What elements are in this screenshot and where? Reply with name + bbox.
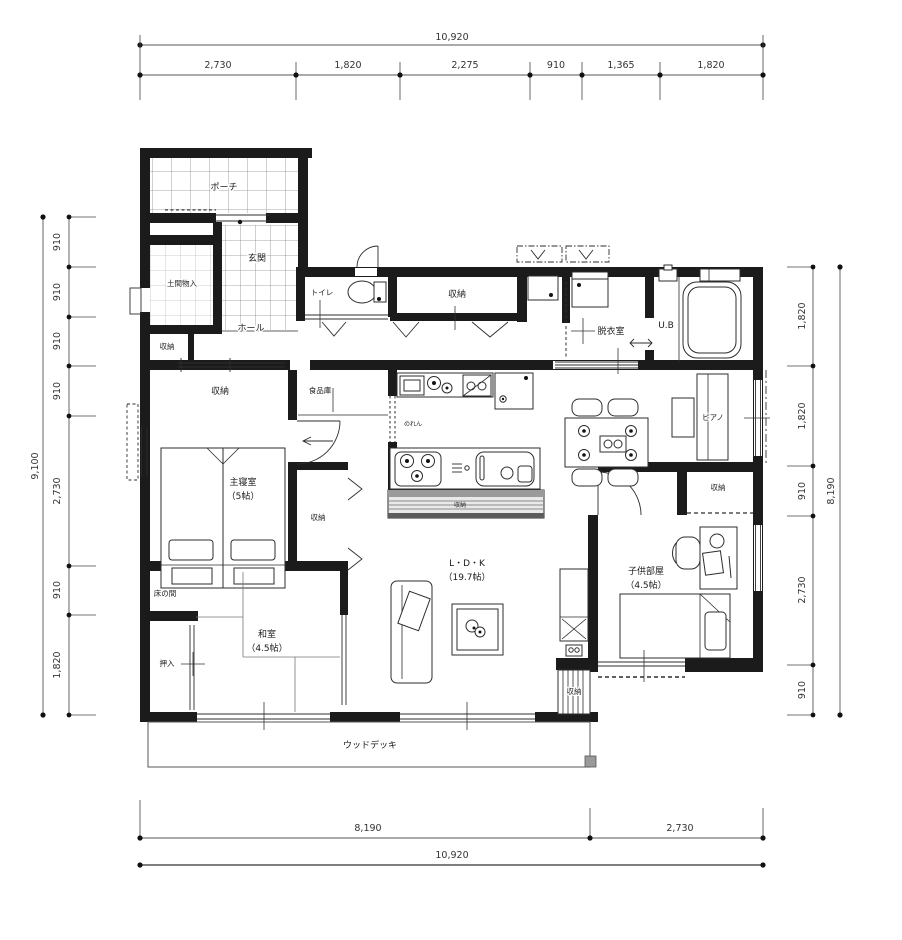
dim-left-seg7: 1,820 [52, 651, 63, 678]
floor-plan-svg: 10,920 2,730 1,820 2,275 910 1,365 1,820… [0, 0, 902, 940]
label-tokonoma: 床の間 [154, 588, 177, 598]
kitchen-back-counter [397, 373, 493, 397]
dim-bottom-total: 10,920 [435, 850, 468, 861]
dim-left-seg2: 910 [52, 283, 63, 301]
label-oshiire: 押入 [160, 658, 175, 668]
floor-plan: 10,920 2,730 1,820 2,275 910 1,365 1,820… [0, 0, 902, 940]
label-dressing-room: 脱衣室 [597, 325, 624, 337]
label-genkan: 玄関 [248, 252, 266, 264]
dim-left-seg6: 910 [52, 581, 63, 599]
label-bedroom-storage: 収納 [211, 385, 229, 397]
label-porch: ポーチ [210, 182, 237, 193]
vanity [528, 276, 558, 300]
label-kids-storage: 収納 [711, 482, 726, 492]
dim-right-seg2: 1,820 [797, 402, 808, 429]
label-master-bedroom-size: （5帖） [227, 490, 260, 502]
dim-top-seg5: 1,365 [607, 60, 634, 71]
genkan-tiles [222, 225, 298, 330]
label-pantry: 食品庫 [309, 385, 332, 395]
label-hall: ホール [237, 323, 264, 334]
label-hall-storage: 収納 [448, 288, 466, 300]
fixtures [148, 265, 770, 767]
dim-left-seg1: 910 [52, 233, 63, 251]
dim-right-total: 8,190 [826, 477, 837, 504]
washing-machine [572, 272, 608, 307]
dim-top-seg1: 2,730 [204, 60, 231, 71]
label-noren: のれん [404, 421, 422, 428]
kitchen-island [390, 448, 540, 489]
dim-top-seg3: 2,275 [451, 60, 478, 71]
label-wood-deck: ウッドデッキ [343, 739, 397, 751]
bathtub [659, 265, 741, 363]
dim-right-seg5: 910 [797, 681, 808, 699]
dim-left-seg3: 910 [52, 332, 63, 350]
label-master-bedroom: 主寝室 [229, 476, 256, 488]
label-kids-room-size: （4.5帖） [625, 579, 666, 591]
dim-left-seg4: 910 [52, 382, 63, 400]
dim-top: 10,920 2,730 1,820 2,275 910 1,365 1,820 [137, 32, 765, 100]
label-toilet: トイレ [311, 288, 334, 297]
label-ldk-storage: 収納 [567, 686, 582, 696]
dim-top-seg4: 910 [547, 60, 565, 71]
dim-left-seg5: 2,730 [52, 477, 63, 504]
label-counter-storage: 収納 [454, 501, 466, 509]
label-piano: ピアノ [702, 413, 724, 422]
label-ldk-size: （19.7帖） [443, 571, 490, 583]
dim-top-seg6: 1,820 [697, 60, 724, 71]
dim-left-total: 9,100 [30, 452, 41, 479]
dim-right-seg4: 2,730 [797, 576, 808, 603]
label-ldk: L・D・K [449, 559, 486, 569]
tatami-lines [196, 572, 340, 712]
dim-left: 9,100 910 910 910 910 2,730 910 1,820 [30, 214, 96, 717]
label-doma-storage: 土間物入 [167, 278, 197, 288]
label-washitsu: 和室 [258, 628, 276, 640]
master-beds [161, 448, 285, 588]
living-table [452, 604, 503, 655]
dim-bottom-seg1: 8,190 [354, 823, 381, 834]
dim-right-seg3: 910 [797, 482, 808, 500]
label-entry-storage: 収納 [160, 341, 175, 351]
label-unit-bath: U.B [658, 321, 674, 331]
kids-chair [676, 537, 700, 569]
sofa [391, 581, 432, 683]
dim-right-seg1: 1,820 [797, 302, 808, 329]
label-washitsu-size: （4.5帖） [246, 642, 287, 654]
refrigerator [495, 373, 533, 409]
label-kids-room: 子供部屋 [628, 565, 664, 577]
toilet-fixture [348, 281, 386, 303]
tv-board [560, 569, 588, 656]
kids-bed [620, 594, 730, 658]
dim-top-seg2: 1,820 [334, 60, 361, 71]
dim-bottom: 8,190 2,730 10,920 [137, 800, 765, 868]
dim-top-total: 10,920 [435, 32, 468, 43]
label-bedroom-closet: 収納 [311, 512, 326, 522]
kids-desk [672, 527, 737, 589]
dim-right: 8,190 1,820 1,820 910 2,730 910 [787, 264, 843, 717]
dim-bottom-seg2: 2,730 [666, 823, 693, 834]
